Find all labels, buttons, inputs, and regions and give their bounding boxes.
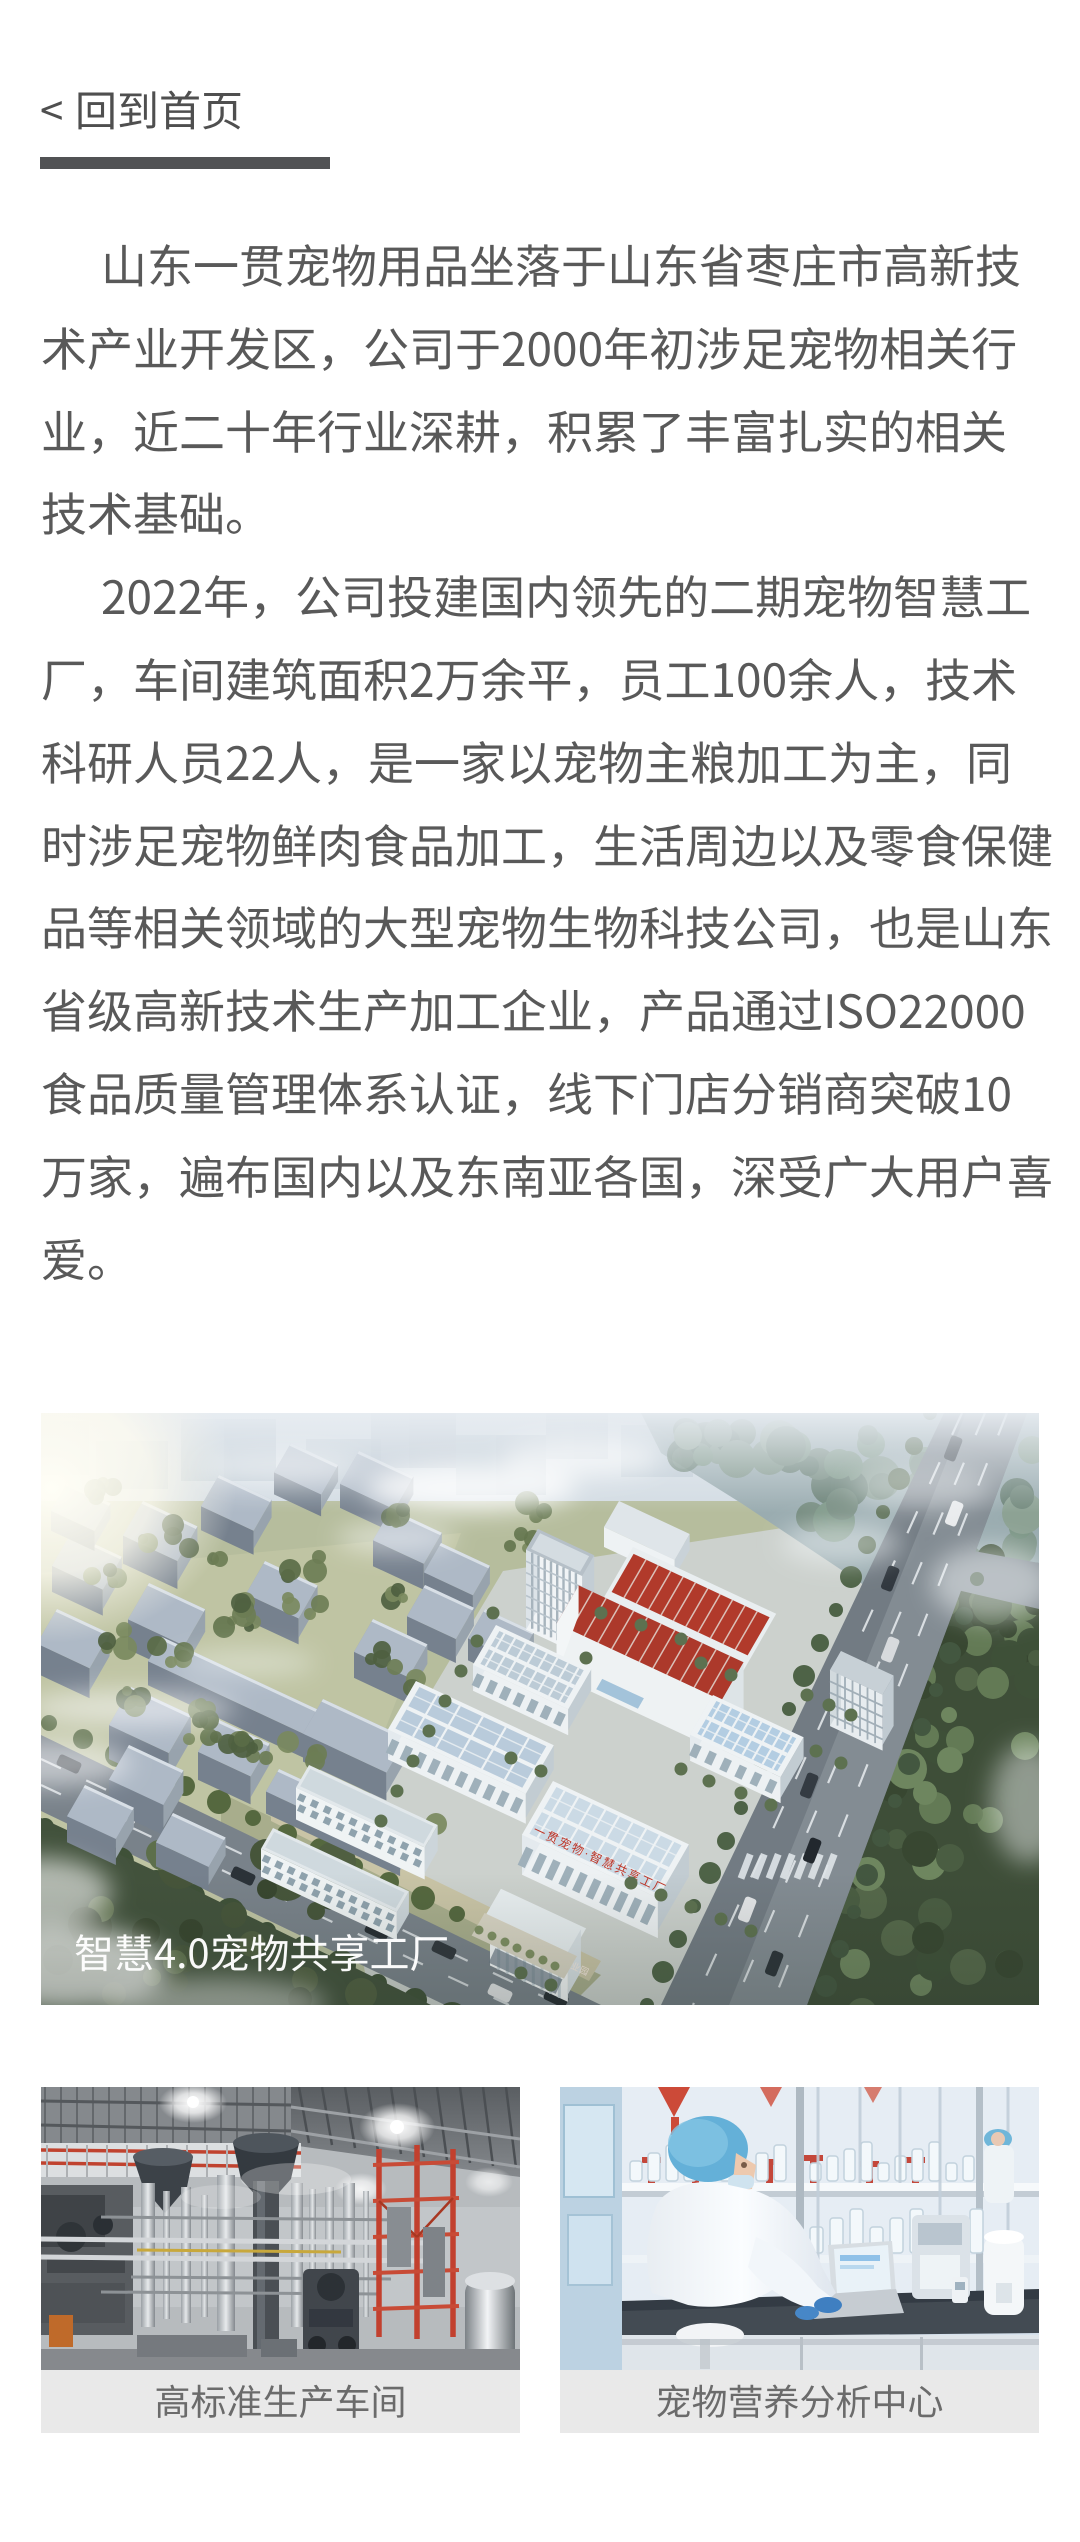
svg-text:智慧4.0宠物共享工厂: 智慧4.0宠物共享工厂 [74, 1922, 450, 1980]
